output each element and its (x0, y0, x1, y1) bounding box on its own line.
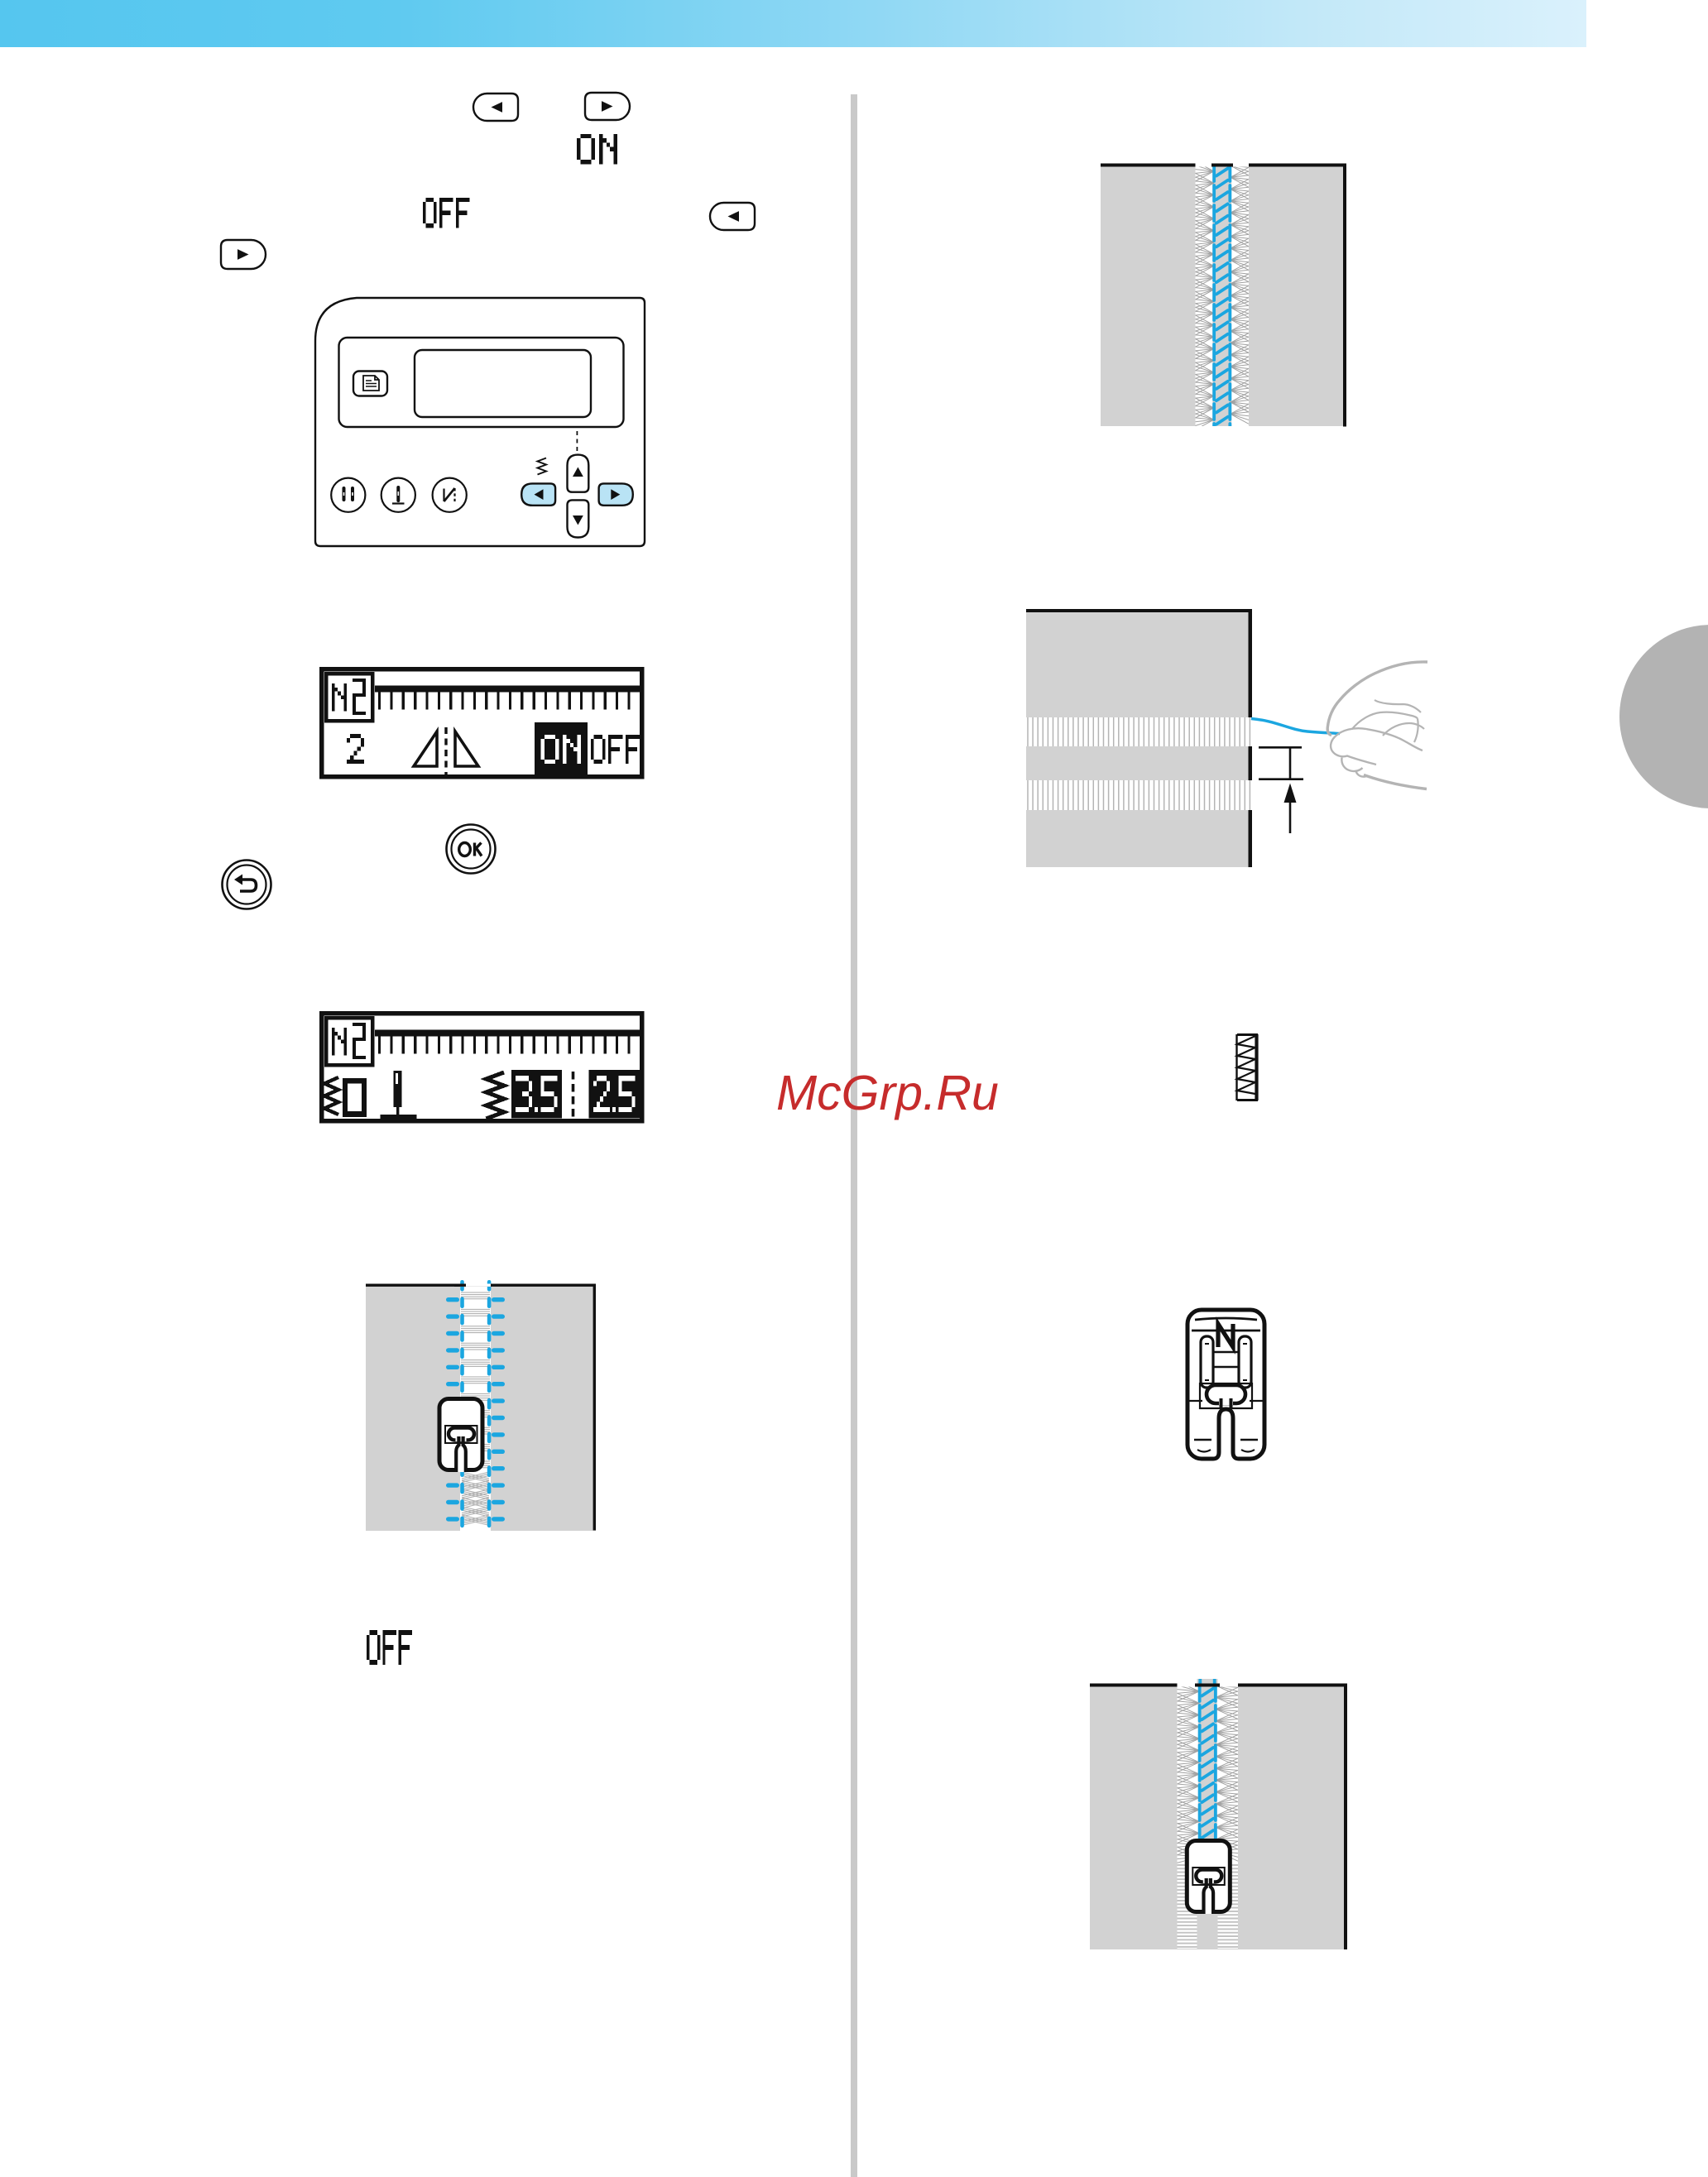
svg-text:McGrp.Ru: McGrp.Ru (776, 1066, 999, 1120)
